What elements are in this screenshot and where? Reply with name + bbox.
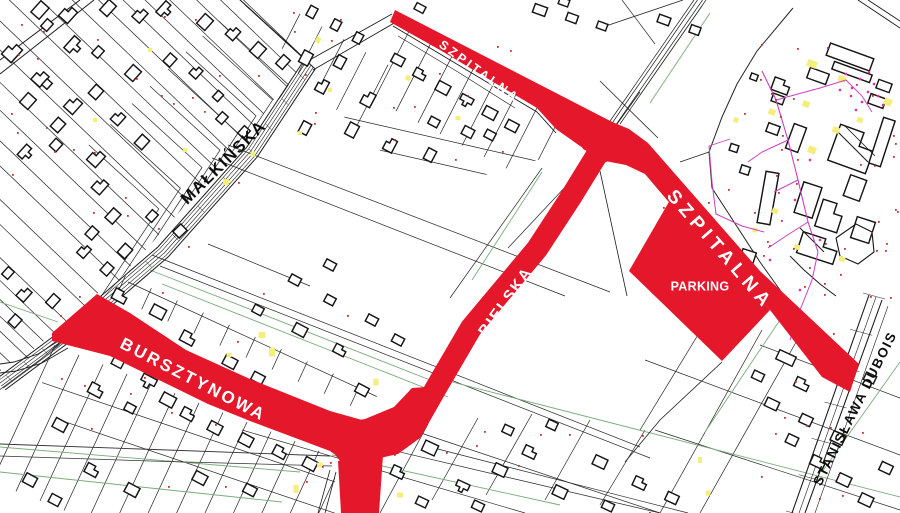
svg-text:PARKING: PARKING <box>671 279 730 293</box>
